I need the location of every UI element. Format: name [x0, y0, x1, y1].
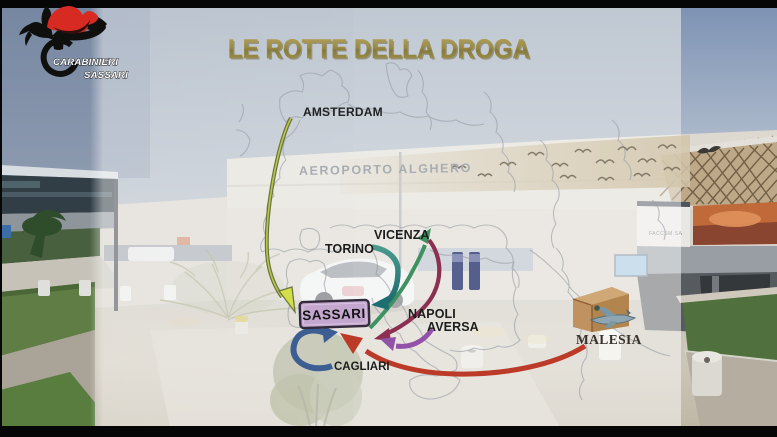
svg-text:LE ROTTE DELLA DROGA: LE ROTTE DELLA DROGA	[228, 34, 530, 64]
svg-text:TORINO: TORINO	[325, 242, 374, 256]
svg-text:CAGLIARI: CAGLIARI	[334, 361, 390, 373]
svg-text:CARABINIERI: CARABINIERI	[53, 57, 118, 68]
svg-text:NAPOLI: NAPOLI	[408, 307, 456, 321]
svg-text:VICENZA: VICENZA	[374, 228, 430, 242]
svg-text:SASSARI: SASSARI	[84, 70, 128, 81]
svg-text:AMSTERDAM: AMSTERDAM	[303, 105, 383, 119]
svg-text:MALESIA: MALESIA	[576, 332, 642, 347]
svg-text:AVERSA: AVERSA	[427, 320, 479, 334]
svg-text:SASSARI: SASSARI	[302, 306, 366, 323]
